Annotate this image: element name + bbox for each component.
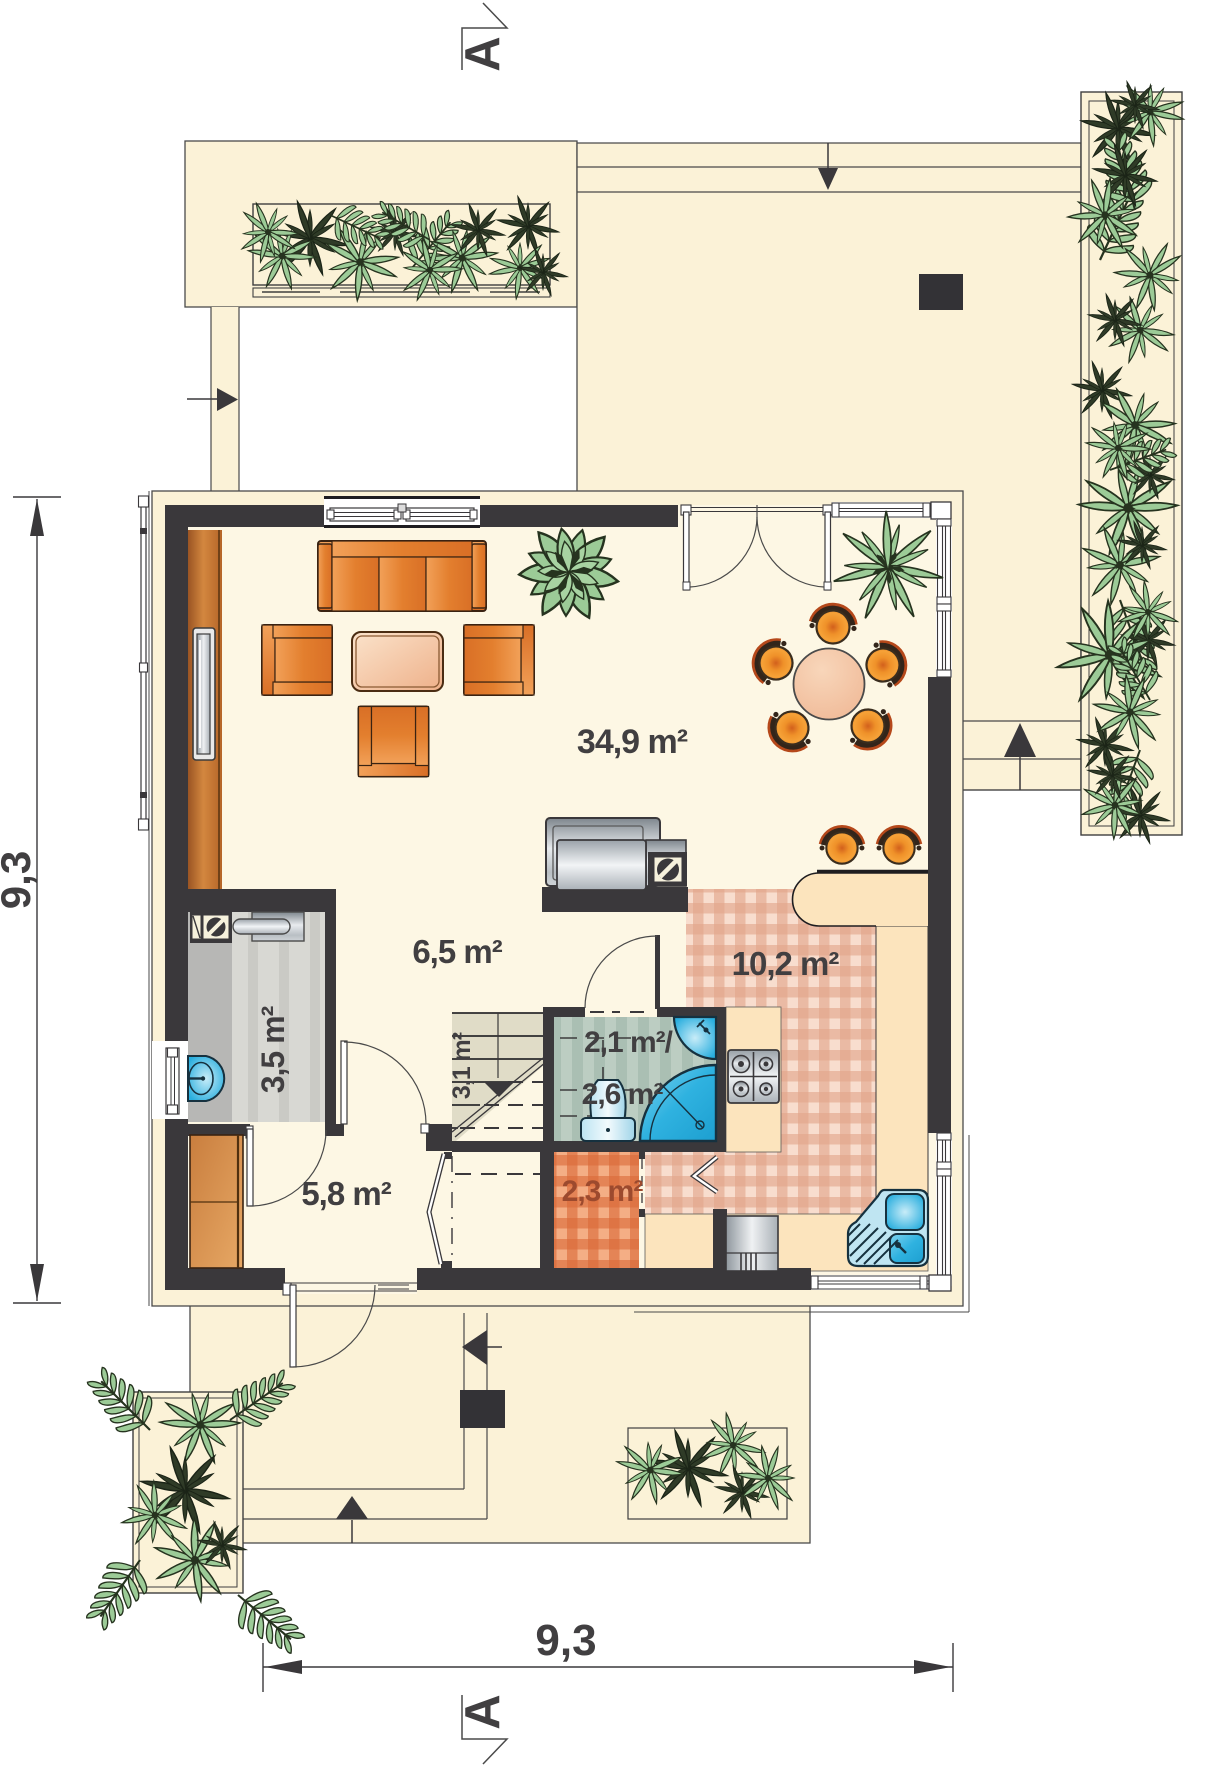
svg-text:34,9 m²: 34,9 m² bbox=[577, 723, 688, 761]
svg-text:A: A bbox=[456, 1694, 510, 1729]
svg-text:2,6 m²: 2,6 m² bbox=[582, 1078, 664, 1111]
svg-text:5,8 m²: 5,8 m² bbox=[301, 1175, 391, 1212]
svg-text:9,3: 9,3 bbox=[0, 851, 39, 909]
svg-text:3,5 m²: 3,5 m² bbox=[255, 1006, 291, 1093]
svg-text:6,5 m²: 6,5 m² bbox=[412, 933, 502, 970]
svg-text:A: A bbox=[456, 36, 510, 71]
svg-text:3,1 m²: 3,1 m² bbox=[448, 1032, 476, 1099]
svg-text:2,1 m²/: 2,1 m²/ bbox=[584, 1026, 674, 1059]
svg-text:2,3 m²: 2,3 m² bbox=[562, 1175, 644, 1208]
svg-text:10,2 m²: 10,2 m² bbox=[732, 945, 840, 982]
svg-text:9,3: 9,3 bbox=[535, 1616, 596, 1665]
